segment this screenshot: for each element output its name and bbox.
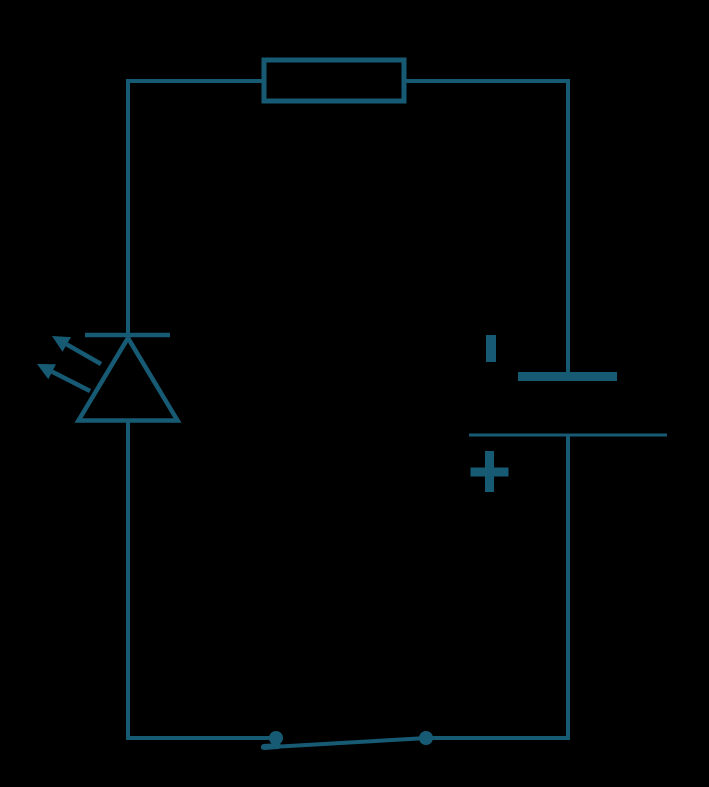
arrow-shaft xyxy=(52,372,90,391)
plus-sign-icon-horizontal-bar xyxy=(471,468,509,477)
led-emission-arrow-lower xyxy=(37,364,90,391)
switch-terminal-left xyxy=(269,731,283,745)
wires xyxy=(128,81,568,738)
wire-top-right-and-right-upper xyxy=(406,81,568,373)
wire-top-left-and-left-upper xyxy=(128,81,263,337)
minus-sign-icon xyxy=(486,335,496,362)
resistor-symbol xyxy=(264,60,404,101)
wire-left-lower-and-bottom-left xyxy=(128,419,271,738)
led-emission-arrow-upper xyxy=(52,336,101,364)
switch-symbol xyxy=(263,731,433,748)
led-symbol xyxy=(37,335,178,421)
battery-positive-label xyxy=(471,451,509,492)
switch-blade xyxy=(263,738,427,748)
battery-negative-label xyxy=(486,335,496,362)
circuit-diagram xyxy=(0,0,709,787)
switch-blade-tip xyxy=(264,746,278,747)
arrow-shaft xyxy=(67,344,101,364)
led-anode-triangle xyxy=(79,338,178,421)
circuit-schematic-svg xyxy=(0,0,709,787)
battery-negative-plate xyxy=(518,372,617,381)
resistor-body xyxy=(264,60,404,101)
wire-right-lower-and-bottom-right xyxy=(426,436,568,738)
